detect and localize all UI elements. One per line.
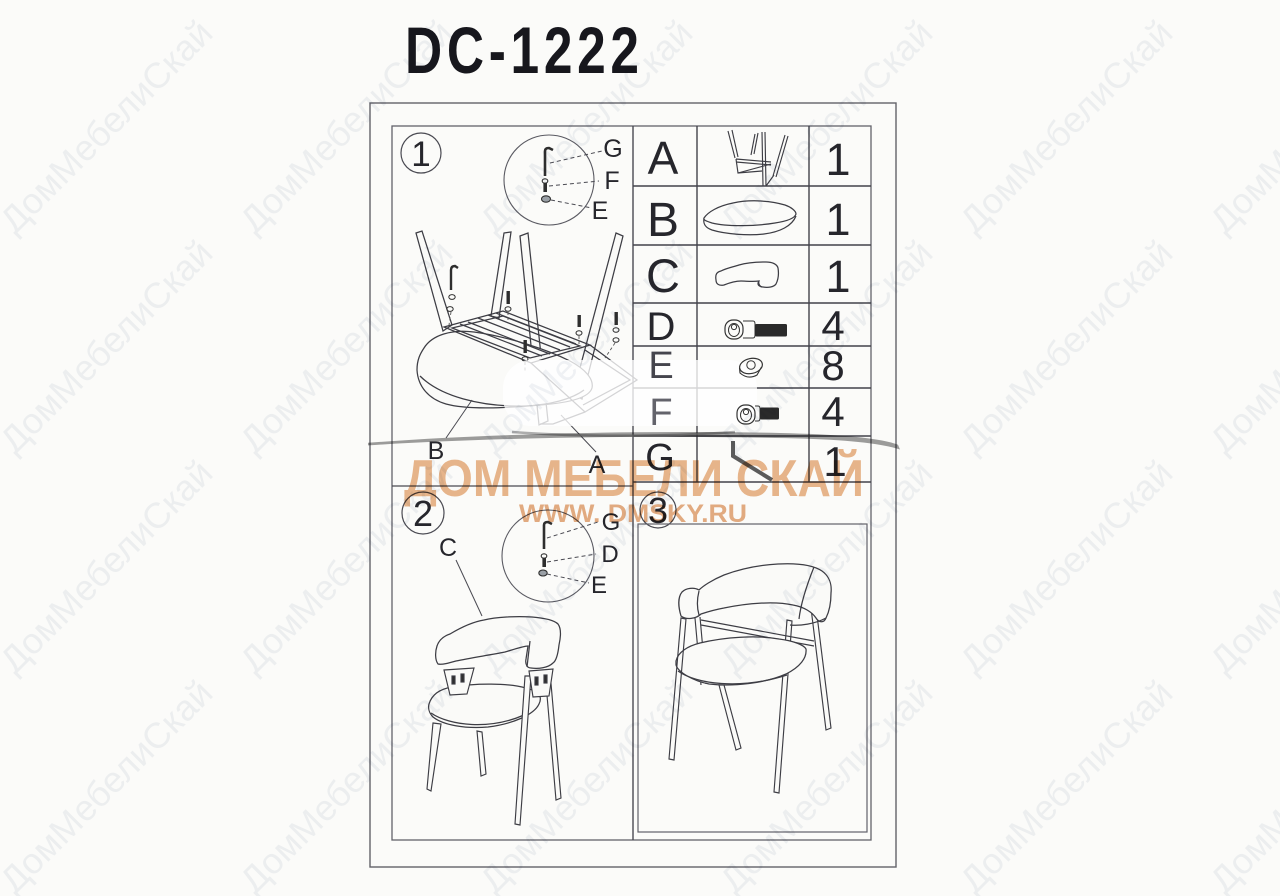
svg-text:A: A xyxy=(648,132,679,184)
svg-text:1: 1 xyxy=(825,194,850,245)
svg-text:E: E xyxy=(648,345,673,387)
svg-text:D: D xyxy=(647,305,676,349)
svg-text:1: 1 xyxy=(825,251,850,302)
svg-text:1: 1 xyxy=(411,135,430,174)
svg-text:G: G xyxy=(603,135,622,163)
svg-text:F: F xyxy=(604,167,619,195)
svg-text:F: F xyxy=(649,392,672,434)
svg-text:C: C xyxy=(439,534,457,562)
svg-text:4: 4 xyxy=(821,388,844,435)
svg-text:E: E xyxy=(592,197,609,225)
